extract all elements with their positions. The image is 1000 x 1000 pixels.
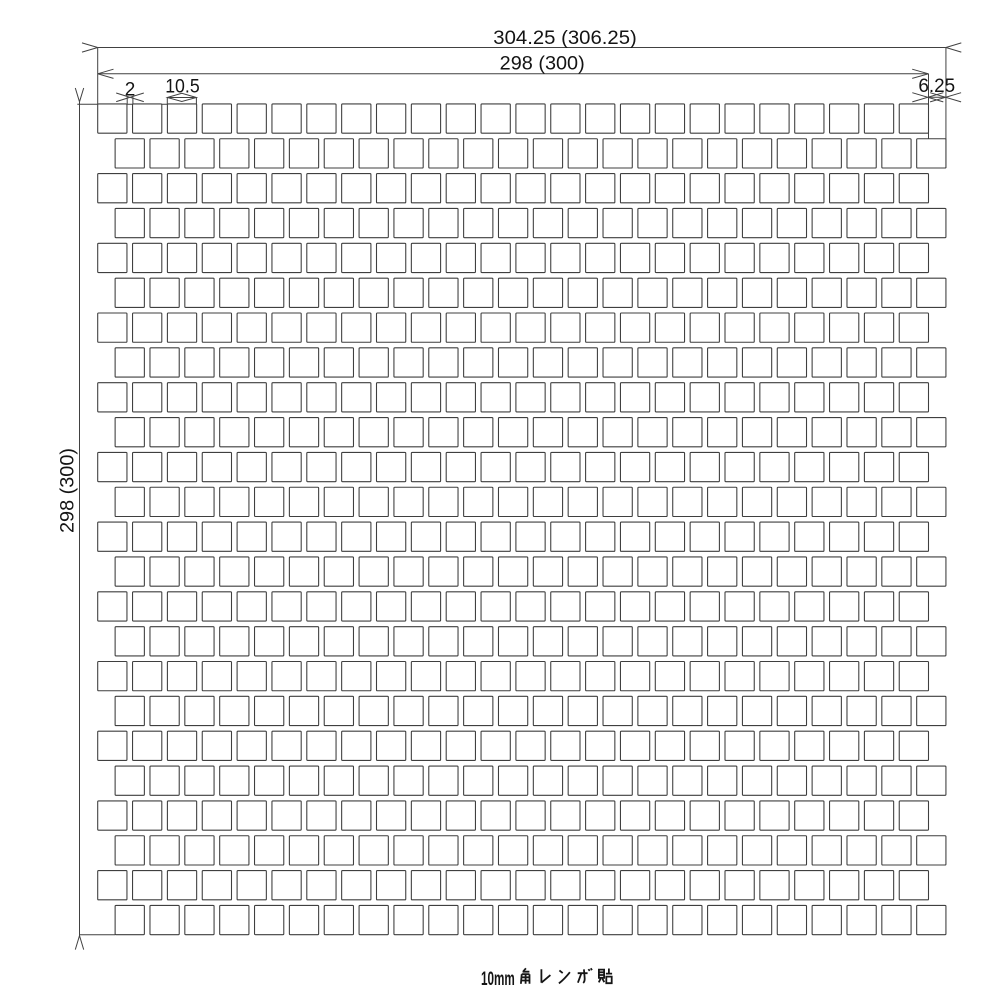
svg-text:304.25 (306.25): 304.25 (306.25)	[493, 28, 637, 49]
svg-text:298 (300): 298 (300)	[500, 54, 585, 75]
svg-text:10mm: 10mm	[481, 969, 515, 990]
svg-text:298 (300): 298 (300)	[58, 448, 79, 533]
svg-text:6.25: 6.25	[918, 76, 955, 97]
svg-text:10.5: 10.5	[165, 77, 200, 98]
